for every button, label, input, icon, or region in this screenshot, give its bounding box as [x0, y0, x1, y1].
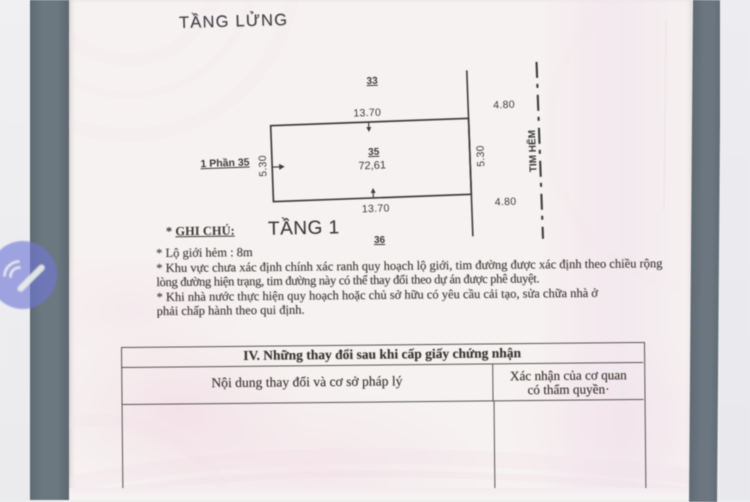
svg-text:5.30: 5.30 [257, 155, 270, 177]
svg-text:5.30: 5.30 [475, 145, 488, 167]
svg-text:4.80: 4.80 [495, 196, 517, 209]
svg-text:35: 35 [368, 147, 380, 158]
svg-text:13.70: 13.70 [362, 202, 390, 215]
svg-text:4.80: 4.80 [493, 99, 515, 112]
svg-text:TIM HẼM: TIM HẼM [525, 130, 540, 173]
svg-text:33: 33 [366, 76, 378, 87]
svg-text:72,61: 72,61 [358, 159, 386, 172]
svg-text:1 Phần 35: 1 Phần 35 [200, 156, 250, 170]
svg-text:13.70: 13.70 [353, 107, 381, 120]
